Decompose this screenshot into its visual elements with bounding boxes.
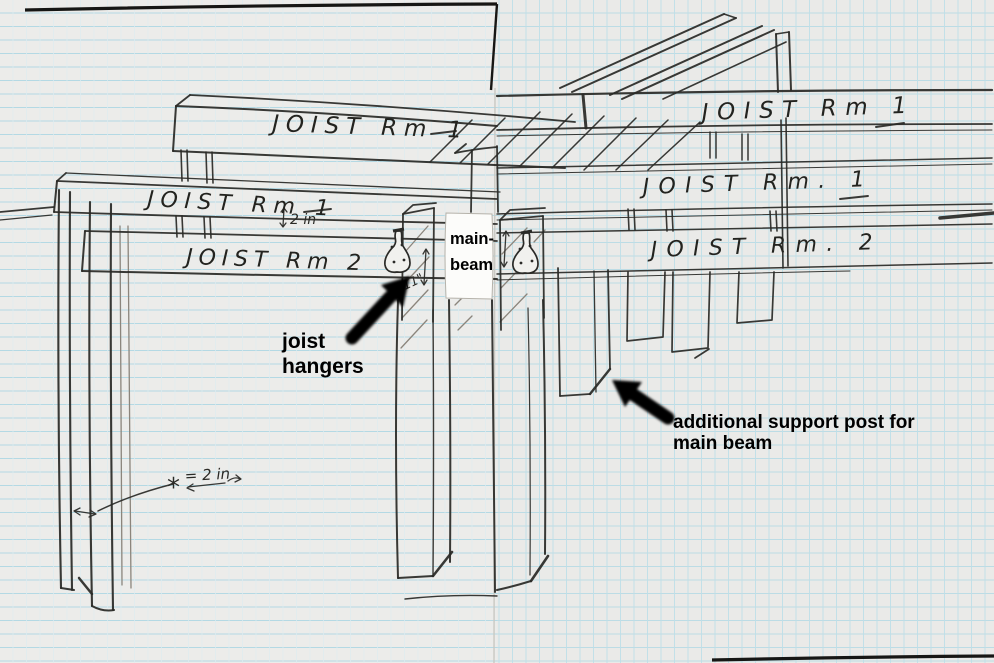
sketch-canvas: JOIST Rm 1 JOIST Rm 1 JOIST Rm 1 JOIST R…	[0, 0, 994, 663]
legend-asterisk-symbol: *	[167, 473, 180, 503]
main-beam-label-line1: main-	[450, 230, 494, 248]
joist-hangers-label-line2: hangers	[282, 355, 364, 378]
support-post-label-line2: main beam	[673, 433, 772, 454]
measurement-2in-gap: 2 in	[290, 212, 316, 228]
scanned-sketch-page: JOIST Rm 1 JOIST Rm 1 JOIST Rm 1 JOIST R…	[0, 0, 994, 663]
paper-sheet-left	[0, 0, 497, 663]
support-post-label-line1: additional support post for	[673, 412, 915, 433]
main-beam-label-line2: beam	[450, 256, 493, 274]
legend-equals-2in: = 2 in	[184, 465, 230, 485]
joist-hangers-label-line1: joist	[281, 330, 325, 353]
